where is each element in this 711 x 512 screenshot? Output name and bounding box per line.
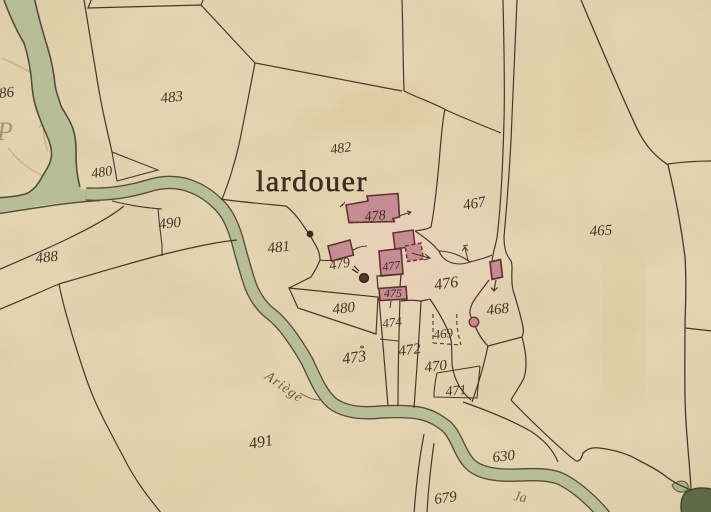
svg-text:lardouer: lardouer (256, 165, 368, 198)
svg-text:476: 476 (433, 274, 459, 294)
svg-text:481: 481 (267, 239, 291, 257)
svg-text:630: 630 (492, 448, 517, 466)
svg-text:470: 470 (424, 358, 449, 376)
svg-text:483: 483 (160, 89, 184, 107)
svg-text:Ja: Ja (512, 489, 528, 506)
svg-text:480: 480 (90, 164, 113, 182)
svg-text:478: 478 (364, 208, 386, 225)
svg-text:488: 488 (35, 249, 60, 267)
svg-text:469: 469 (433, 325, 454, 342)
svg-text:472: 472 (397, 341, 422, 360)
svg-text:465: 465 (589, 222, 613, 240)
svg-text:*: * (359, 344, 364, 355)
svg-text:482: 482 (329, 140, 352, 158)
svg-text:486: 486 (0, 84, 15, 102)
svg-text:474: 474 (381, 313, 403, 331)
svg-text:P: P (0, 117, 13, 146)
svg-text:477: 477 (381, 257, 402, 274)
svg-text:475: 475 (384, 286, 402, 300)
svg-text:480: 480 (332, 300, 357, 318)
svg-text:471: 471 (445, 383, 467, 400)
svg-text:490: 490 (158, 215, 183, 233)
svg-text:468: 468 (486, 301, 511, 319)
svg-text:679: 679 (433, 489, 458, 508)
